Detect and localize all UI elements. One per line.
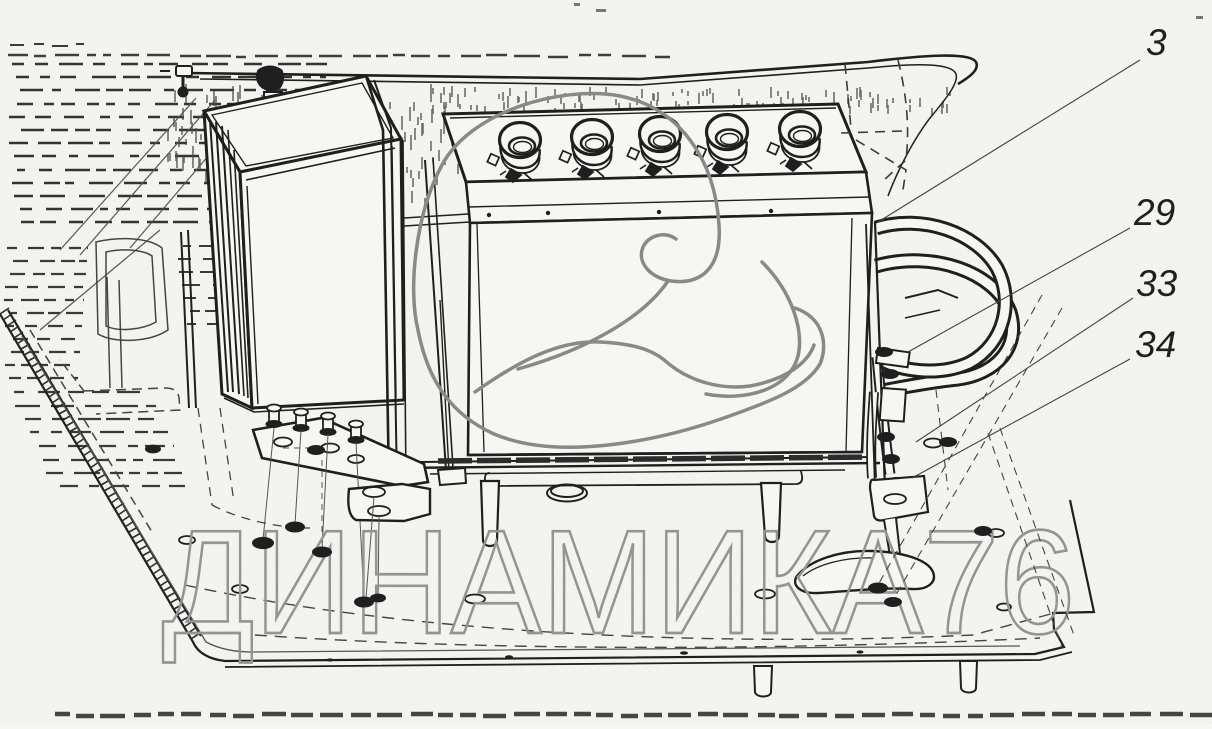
svg-text:3: 3 <box>1146 22 1167 63</box>
svg-text:34: 34 <box>1135 324 1176 365</box>
svg-text:29: 29 <box>1133 192 1175 233</box>
svg-text:33: 33 <box>1136 263 1178 304</box>
